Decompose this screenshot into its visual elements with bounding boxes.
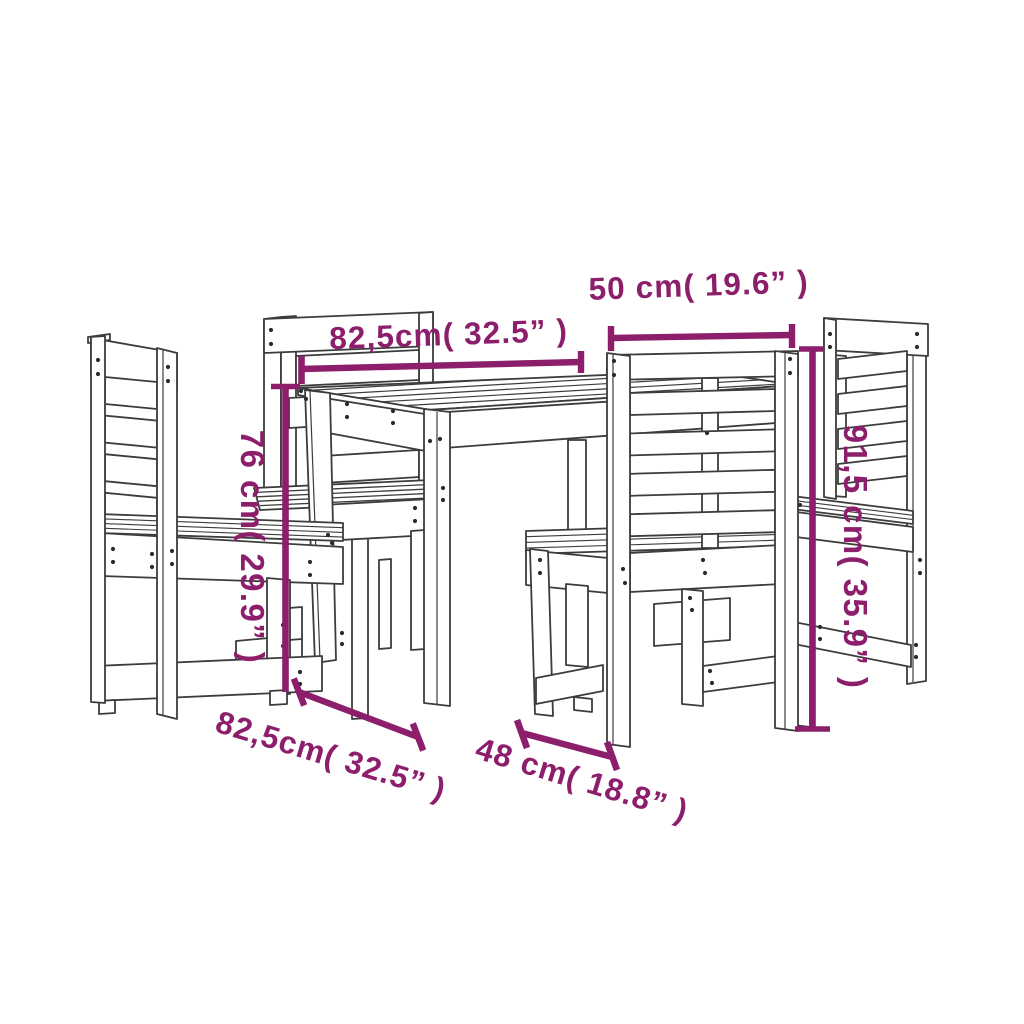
svg-text:50 cm( 19.6” ): 50 cm( 19.6” ) bbox=[588, 263, 809, 307]
svg-text:91,5 cm( 35.9” ): 91,5 cm( 35.9” ) bbox=[837, 425, 874, 690]
svg-text:76 cm( 29.9” ): 76 cm( 29.9” ) bbox=[234, 430, 271, 664]
